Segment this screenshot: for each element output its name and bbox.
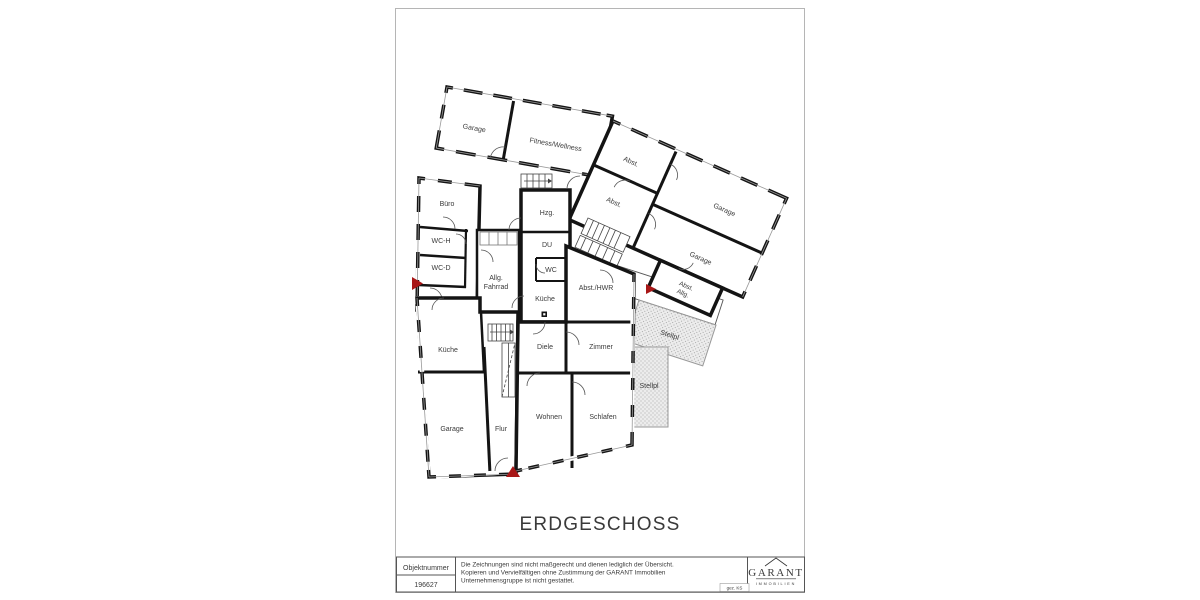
staircase-top [521, 174, 552, 188]
wall [465, 229, 466, 288]
disclaimer-line-2: Kopieren und Vervielfältigen ohne Zustim… [461, 570, 666, 577]
room-label-abst-hwr: Abst./HWR [579, 285, 614, 292]
room-label-zimmer: Zimmer [589, 344, 613, 351]
building-bottom-left: Küche Garage Flur [417, 298, 518, 477]
objektnummer-label: Objektnummer [403, 565, 450, 572]
brand-name: GARANT [748, 567, 803, 579]
building-left-wing: Büro WC-H WC-D [417, 178, 480, 310]
page-title: ERDGESCHOSS [519, 514, 680, 535]
objektnummer-value: 196627 [414, 582, 437, 589]
room-label-allg: Allg. [489, 275, 503, 282]
room-label-wc-h: WC-H [431, 238, 450, 245]
column-symbol-core [543, 313, 545, 315]
signature-text: gez. KS [727, 586, 743, 591]
room-label-schlafen: Schlafen [589, 414, 616, 421]
room-label-fahrrad: Fahrrad [484, 284, 509, 291]
room-label-wohnen: Wohnen [536, 414, 562, 421]
parking-area-vertical: Stellpl [630, 347, 668, 427]
footer-title-block: Objektnummer 196627 Die Zeichnungen sind… [397, 557, 805, 592]
room-label-hzg: Hzg. [540, 210, 554, 217]
room-label-garage-unten: Garage [440, 426, 463, 433]
disclaimer-line-1: Die Zeichnungen sind nicht maßgerecht un… [461, 561, 674, 569]
room-label-du: DU [542, 242, 552, 249]
brand-subtitle: IMMOBILIEN [756, 582, 796, 586]
floor-plan-sheet: Stellpl Stellpl Garage Fitness/Wellness [0, 0, 1200, 600]
disclaimer-line-3: Unternehmensgruppe ist nicht gestattet. [461, 578, 575, 585]
room-label-kueche-mitte: Küche [535, 296, 555, 303]
corridor-fahrrad: Allg. Fahrrad [477, 230, 519, 312]
room-label-diele: Diele [537, 344, 553, 351]
room-label-kueche-links: Küche [438, 347, 458, 354]
room-label-wc-d: WC-D [431, 265, 450, 272]
room-label-stellplatz-2: Stellpl [639, 383, 659, 390]
room-label-flur: Flur [495, 426, 508, 433]
screenshot-canvas: Stellpl Stellpl Garage Fitness/Wellness [0, 0, 1200, 600]
room-label-buero: Büro [440, 201, 455, 208]
room-label-wc: WC [545, 267, 557, 274]
